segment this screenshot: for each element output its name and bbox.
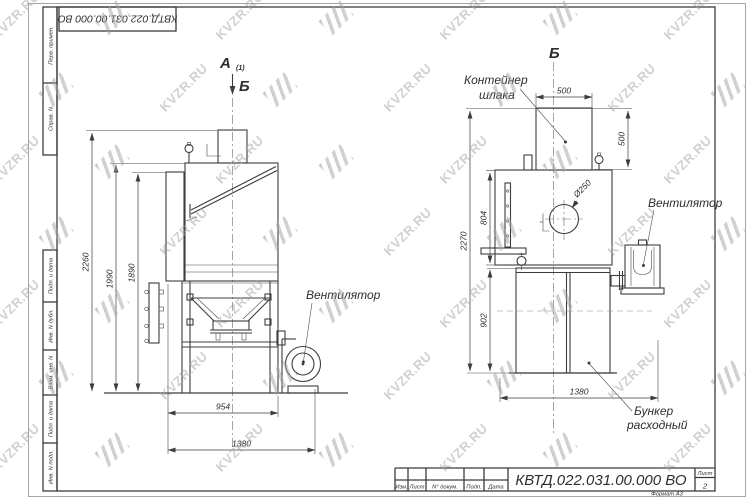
tb-col-dokum: N° докум. — [432, 485, 458, 491]
tb-col-data: Дата — [487, 485, 504, 491]
bunker — [516, 268, 610, 373]
view-a-machine — [104, 130, 348, 393]
slanted-lid — [191, 167, 276, 211]
side-cell-vzam-inv: Взам. инв. N — [49, 355, 55, 390]
view-a-title: А — [219, 55, 231, 72]
dim-500-width: 500 — [557, 86, 571, 96]
dim-902: 902 — [479, 313, 489, 327]
dim-d250: Ø250 — [571, 177, 594, 200]
label-container-1: Контейнер — [464, 73, 528, 87]
dim-1890: 1890 — [127, 263, 137, 282]
side-cell-podp-data-1: Подп. и дата — [49, 257, 55, 294]
container-stub — [524, 155, 532, 170]
label-fan-a: Вентилятор — [306, 288, 381, 302]
corner-stamp-doc-number: КВТД.022.031.00.000 ВО — [58, 13, 178, 25]
view-a-dimensions: 2260 1990 1890 954 1380 — [81, 131, 316, 455]
hopper-outlet — [213, 321, 249, 330]
dim-1380-a: 1380 — [232, 439, 251, 449]
view-a-title-suffix: (1) — [236, 65, 245, 72]
tb-col-list: Лист — [409, 485, 425, 491]
tb-col-podp: Подп. — [466, 485, 481, 491]
fan-base-b — [621, 288, 664, 294]
tb-doc-number: КВТД.022.031.00.000 ВО — [515, 472, 687, 489]
side-cell-podp-data-2: Подп. и дата — [49, 400, 55, 437]
label-fan-b: Вентилятор — [648, 196, 723, 210]
label-container-2: шлака — [479, 88, 515, 102]
fan-base — [288, 386, 318, 393]
label-bunker-2: расходный — [626, 418, 688, 432]
side-cell-inv-dubl: Инв. N дубл. — [49, 309, 55, 343]
dim-954: 954 — [216, 402, 230, 412]
lower-valve — [517, 257, 526, 266]
tb-sheet-number: 2 — [702, 482, 708, 491]
side-cell-sprav-n: Справ. N — [49, 106, 55, 131]
view-b-title: Б — [549, 45, 560, 62]
frame-border — [57, 7, 715, 491]
section-arrow-head — [230, 86, 236, 95]
inner-bracket — [543, 214, 550, 232]
top-bracket — [207, 144, 221, 156]
dim-2270: 2270 — [459, 231, 469, 251]
view-a-callouts: Вентилятор — [302, 288, 381, 364]
label-bunker-1: Бункер — [634, 404, 673, 418]
side-duct — [166, 172, 184, 281]
top-valve-b — [595, 156, 603, 164]
corner-stamp: КВТД.022.031.00.000 ВО — [58, 7, 178, 31]
fan-impeller-b — [634, 250, 652, 275]
side-column: Перв. примен. Справ. N Подп. и дата Инв.… — [49, 26, 55, 484]
tb-col-izm: Изм. — [395, 485, 407, 491]
dim-1990: 1990 — [105, 269, 115, 288]
title-block: Изм. Лист N° докум. Подп. Дата КВТД.022.… — [395, 468, 715, 498]
view-a-section-mark: Б — [239, 78, 250, 95]
view-b-callouts: Контейнер шлака Вентилятор Бункер расход… — [464, 73, 723, 432]
tb-format-note: Формат А3 — [651, 492, 683, 498]
machine-body — [185, 163, 278, 281]
view-b-machine — [481, 108, 664, 373]
view-a: А (1) Б — [81, 55, 381, 454]
discharge-door — [149, 283, 159, 343]
dim-2260: 2260 — [81, 252, 91, 272]
side-cell-perv-primen: Перв. примен. — [49, 26, 55, 65]
drawing-sheet: KVZR.RUKVZR.RUKVZR.RUKVZR.RUKVZR.RUKVZR.… — [0, 0, 750, 500]
side-cell-inv-podl: Инв. N подл. — [49, 450, 55, 484]
dim-500-height: 500 — [617, 132, 627, 146]
engineering-drawing: Перв. примен. Справ. N Подп. и дата Инв.… — [0, 0, 750, 500]
dim-804: 804 — [479, 211, 489, 225]
dim-1380-b: 1380 — [570, 387, 589, 397]
tb-sheet-label: Лист — [697, 471, 713, 477]
side-shelf — [481, 248, 526, 254]
view-b: Б — [459, 45, 723, 436]
